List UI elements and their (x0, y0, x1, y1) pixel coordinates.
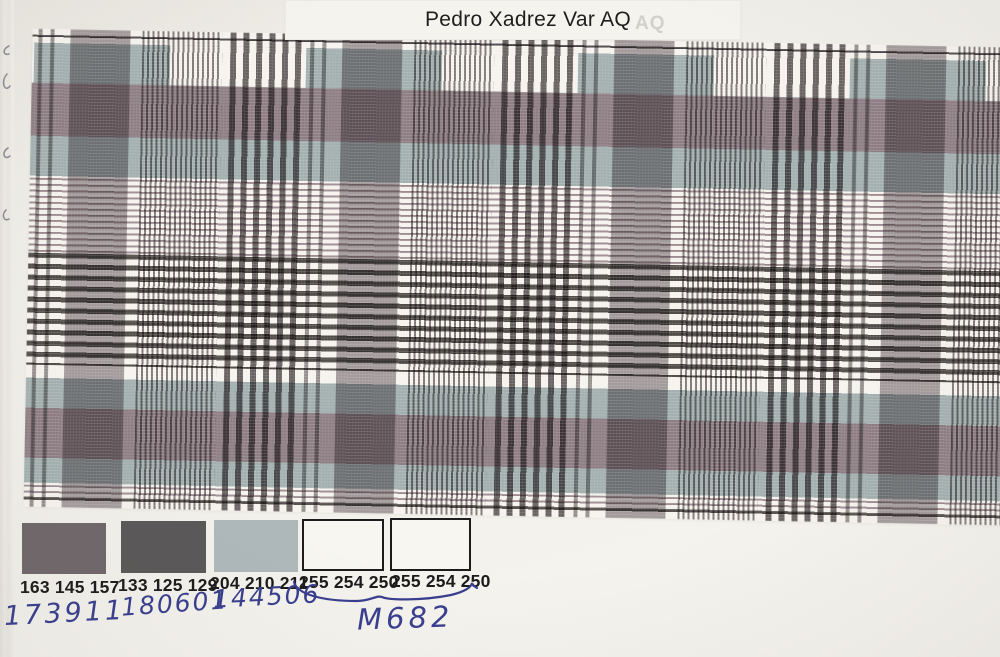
color-swatch (22, 523, 106, 574)
page-title: Pedro Xadrez Var AQ (285, 8, 741, 32)
pen-squiggle-marks (0, 40, 14, 260)
color-swatch (302, 519, 384, 571)
color-swatch (214, 520, 298, 572)
handwritten-group-code: M682 (356, 599, 454, 636)
plaid-vertical-stripes (24, 29, 1000, 526)
ghost-watermark-text: AQ (635, 13, 666, 35)
title-sticker: Pedro Xadrez Var AQ AQ (285, 0, 741, 40)
rgb-value-label: 163 145 157 (20, 577, 108, 598)
color-swatch (121, 521, 206, 573)
plaid-fabric-print (24, 29, 1000, 526)
handwritten-code: 173911 (3, 595, 126, 632)
photographed-swatch-sheet: Pedro Xadrez Var AQ AQ 163 145 157 133 1… (0, 0, 1000, 657)
color-swatch (390, 518, 471, 571)
